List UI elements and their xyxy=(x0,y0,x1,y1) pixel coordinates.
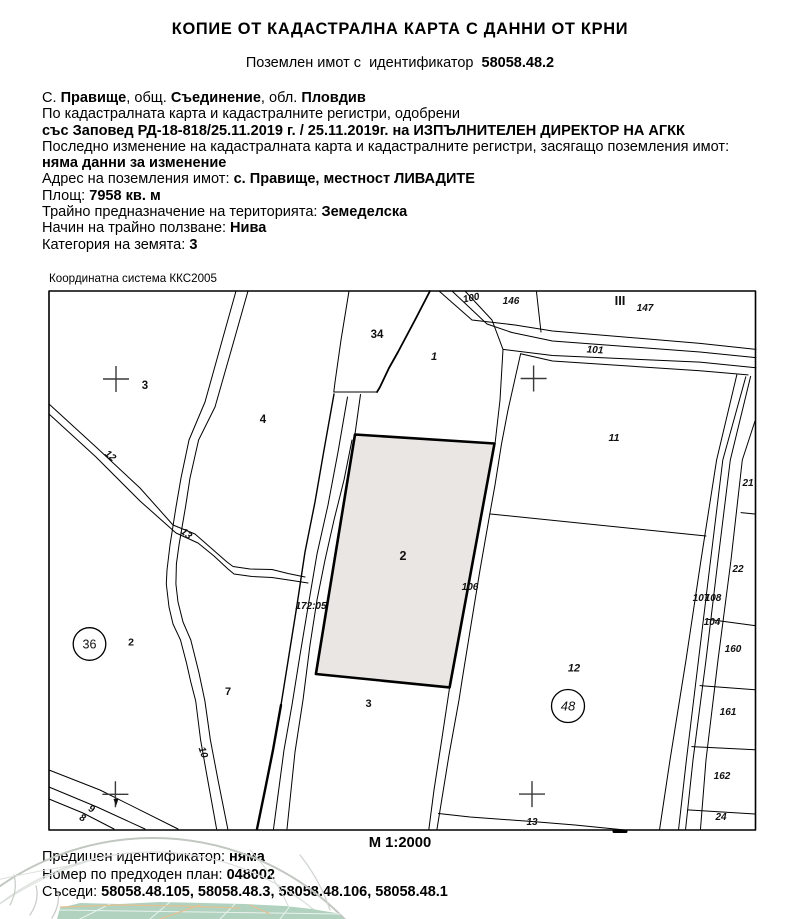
svg-text:101: 101 xyxy=(586,344,604,356)
svg-text:12: 12 xyxy=(102,448,118,464)
svg-text:13: 13 xyxy=(526,817,538,828)
svg-text:104: 104 xyxy=(704,617,721,628)
svg-text:3: 3 xyxy=(365,698,371,710)
svg-text:162: 162 xyxy=(714,771,731,782)
svg-text:2: 2 xyxy=(128,637,134,649)
svg-text:146: 146 xyxy=(503,296,520,307)
svg-text:160: 160 xyxy=(725,644,742,655)
svg-text:1: 1 xyxy=(431,351,437,363)
svg-text:12: 12 xyxy=(568,663,580,675)
svg-text:10: 10 xyxy=(196,745,210,759)
svg-text:34: 34 xyxy=(371,329,384,341)
svg-text:36: 36 xyxy=(83,638,97,652)
svg-text:24: 24 xyxy=(714,812,727,823)
svg-text:147: 147 xyxy=(637,303,654,314)
svg-text:3: 3 xyxy=(142,380,148,392)
svg-text:9: 9 xyxy=(87,803,97,816)
svg-text:106: 106 xyxy=(462,582,479,593)
svg-text:11: 11 xyxy=(609,432,620,444)
svg-text:100: 100 xyxy=(462,291,481,305)
svg-text:161: 161 xyxy=(720,707,737,718)
svg-text:108: 108 xyxy=(705,593,722,604)
svg-text:22: 22 xyxy=(731,564,744,575)
svg-text:4: 4 xyxy=(260,414,267,426)
svg-text:48: 48 xyxy=(561,699,576,714)
svg-text:2: 2 xyxy=(400,549,407,563)
svg-text:21: 21 xyxy=(741,478,754,489)
svg-text:8: 8 xyxy=(78,812,88,825)
svg-text:III: III xyxy=(615,293,626,308)
svg-text:7: 7 xyxy=(225,686,231,698)
svg-text:172:05: 172:05 xyxy=(295,601,327,612)
